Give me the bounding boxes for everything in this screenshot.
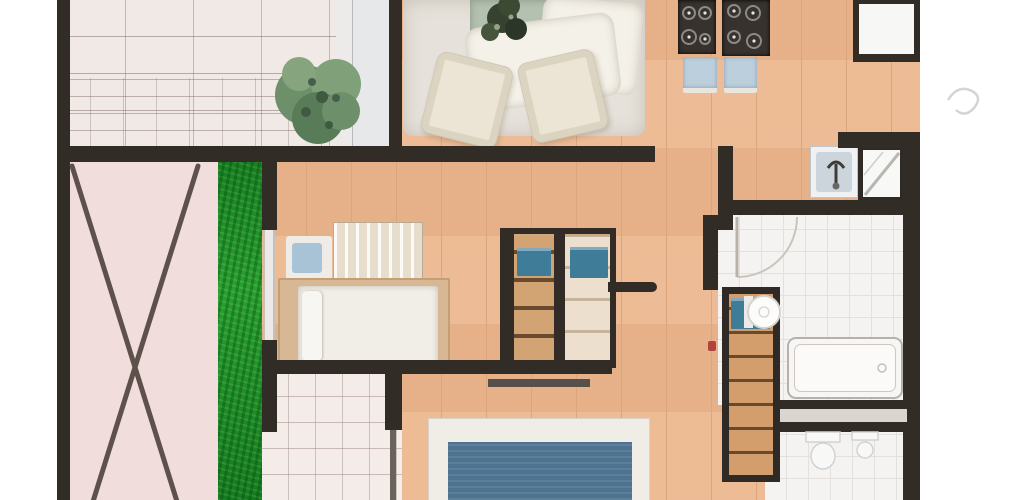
- shower-glass-line: [864, 152, 899, 195]
- tree-icon: [275, 57, 361, 144]
- plant-icon: [481, 0, 527, 41]
- washbasin-icon: [744, 296, 780, 328]
- door-swing-arc: [737, 217, 797, 277]
- x-brace-lines: [70, 166, 200, 500]
- stove-burner-icons: [682, 5, 761, 48]
- faucet-icon: [828, 162, 844, 190]
- bathtub-drain-icon: [878, 364, 886, 372]
- annotations-overlay: [0, 0, 1024, 500]
- fabric-curl-mark: [948, 89, 978, 114]
- floor-plan: [0, 0, 1024, 500]
- sink-icon: [852, 432, 878, 458]
- toilet-icon: [806, 432, 840, 469]
